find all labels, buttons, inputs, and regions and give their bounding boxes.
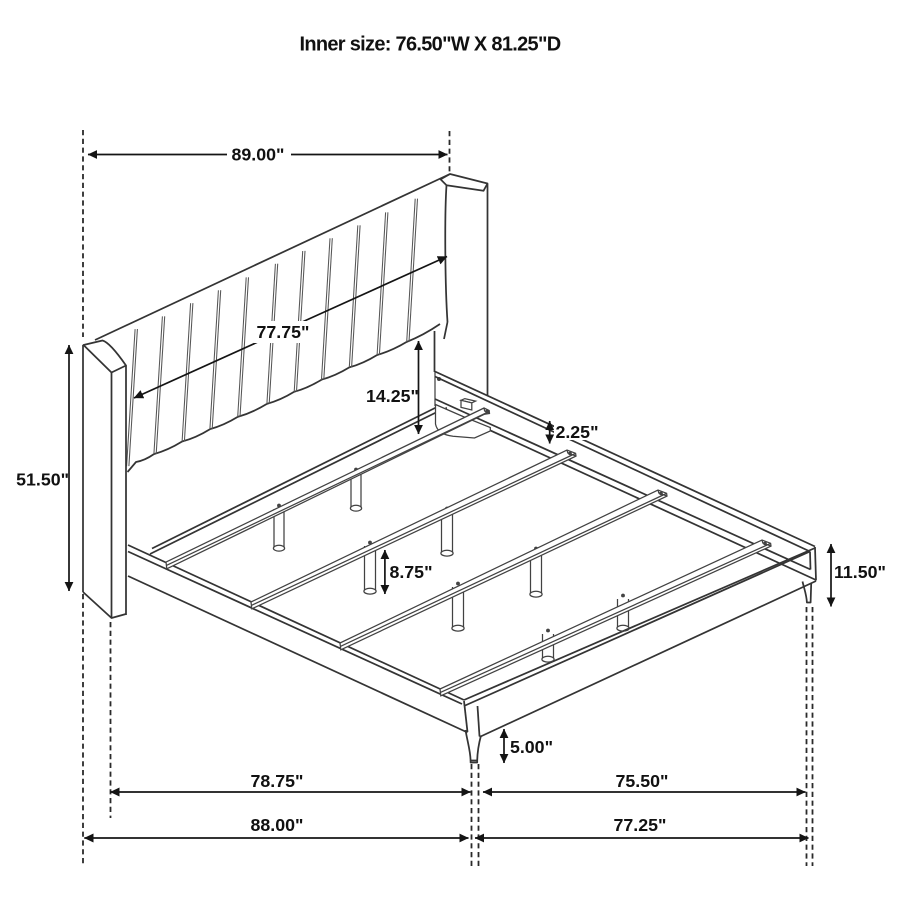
- svg-text:77.75": 77.75": [257, 322, 310, 342]
- svg-text:14.25": 14.25": [366, 386, 419, 406]
- svg-text:88.00": 88.00": [251, 815, 304, 835]
- svg-text:75.50": 75.50": [616, 771, 669, 791]
- svg-text:8.75": 8.75": [389, 562, 432, 582]
- svg-text:2.25": 2.25": [555, 422, 598, 442]
- svg-text:11.50": 11.50": [834, 562, 886, 582]
- svg-text:51.50": 51.50": [16, 470, 69, 490]
- svg-text:5.00": 5.00": [510, 737, 553, 757]
- svg-text:89.00": 89.00": [232, 145, 285, 165]
- svg-text:77.25": 77.25": [614, 815, 667, 835]
- svg-text:78.75": 78.75": [251, 771, 304, 791]
- svg-text:Inner size: 76.50"W X 81.25"D: Inner size: 76.50"W X 81.25"D: [299, 34, 560, 56]
